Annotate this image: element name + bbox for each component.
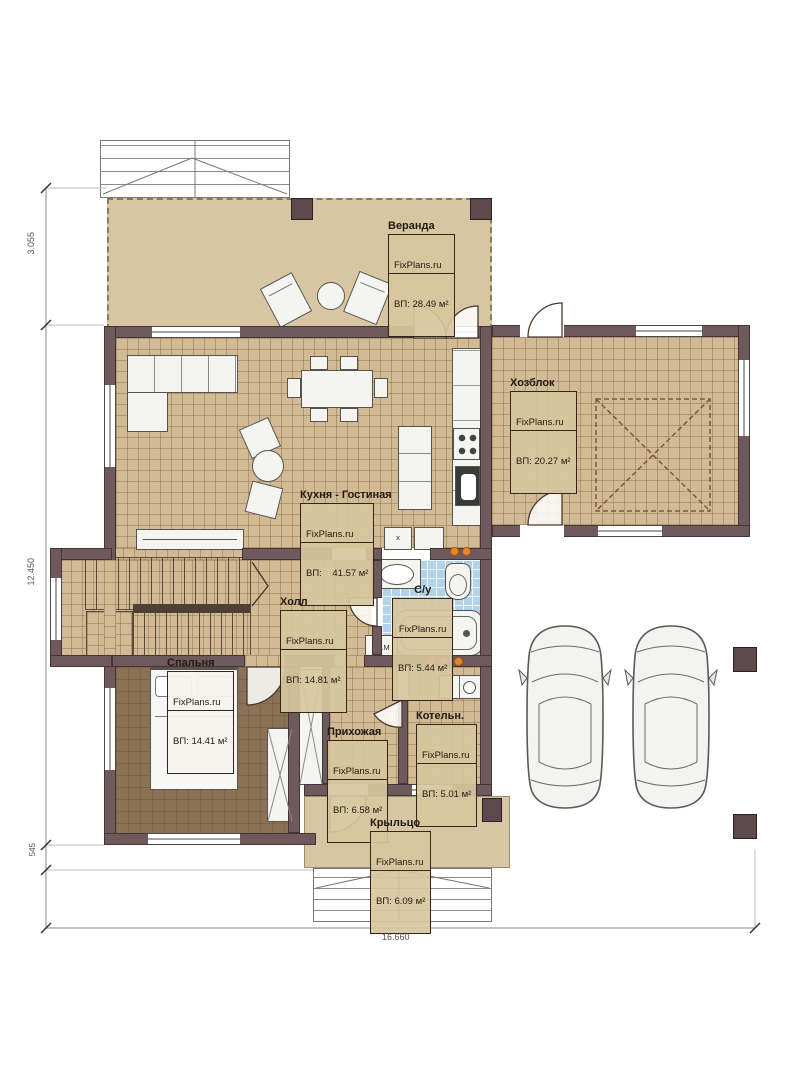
room-label-boiler: Котельн. FixPlans.ru ВП: 5.01 м² [416, 710, 477, 827]
wall-segment [50, 655, 112, 667]
floor-plan: x Ст.М [0, 0, 792, 1080]
brand-watermark: FixPlans.ru [511, 416, 576, 431]
room-name: Прихожая [327, 726, 388, 738]
room-area: ВП: 5.01 м² [417, 788, 476, 802]
room-name: Кухня - Гостиная [300, 489, 392, 501]
bathtub-drain [463, 630, 470, 637]
porch-post [482, 798, 502, 822]
room-area: ВП: 6.09 м² [371, 895, 430, 909]
hozblok-door-opening [520, 325, 564, 337]
brand-watermark: FixPlans.ru [328, 765, 387, 780]
window [50, 578, 62, 640]
car [519, 626, 611, 808]
room-info-box: FixPlans.ru ВП: 14.81 м² [280, 610, 347, 713]
window [104, 385, 116, 467]
stairs-rail [133, 604, 251, 613]
room-label-kitchen-living: Кухня - Гостиная FixPlans.ru ВП: 41.57 м… [300, 489, 392, 606]
room-area: ВП: 6.58 м² [328, 804, 387, 818]
tv-stand [136, 529, 244, 550]
window [598, 525, 662, 537]
brand-watermark: FixPlans.ru [417, 749, 476, 764]
chair [340, 356, 358, 370]
lounge-chair-line [360, 282, 384, 293]
room-info-box: FixPlans.ru ВП: 20.27 м² [510, 391, 577, 494]
wall-segment [430, 548, 492, 560]
veranda-table [317, 282, 345, 310]
veranda-post [470, 198, 492, 220]
wall-segment [372, 626, 382, 655]
dimension-left-bottom: 545 [28, 843, 37, 856]
room-info-box: FixPlans.ru ВП: 28.49 м² [388, 234, 455, 337]
room-label-hall: Холл FixPlans.ru ВП: 14.81 м² [280, 596, 347, 713]
light-marker [462, 547, 471, 556]
boiler-dial [463, 681, 476, 694]
room-name: Веранда [388, 220, 455, 232]
chair [374, 378, 388, 398]
wall-segment [480, 326, 492, 796]
dimension-bottom: 16.660 [382, 932, 410, 942]
light-marker [450, 547, 459, 556]
car [625, 626, 717, 808]
room-info-box: FixPlans.ru ВП: 41.57 м² [300, 503, 374, 606]
room-name: Котельн. [416, 710, 477, 722]
top-exterior-steps [100, 140, 290, 198]
window [104, 688, 116, 770]
lounge-chair-line [269, 283, 292, 296]
site-column [733, 814, 757, 839]
chair [310, 356, 328, 370]
room-area: ВП: 14.81 м² [281, 674, 346, 688]
room-name: Холл [280, 596, 347, 608]
room-info-box: FixPlans.ru ВП: 5.01 м² [416, 724, 477, 827]
room-area: ВП: 5.44 м² [393, 662, 452, 676]
wall-segment [398, 700, 408, 784]
sink-basin [461, 474, 476, 500]
window [636, 325, 702, 337]
brand-watermark: FixPlans.ru [389, 259, 454, 274]
room-area: ВП: 28.49 м² [389, 298, 454, 312]
tv-stand-line [143, 539, 237, 540]
dimension-left-middle: 12.450 [26, 558, 36, 586]
dimension-left-top: 3.055 [26, 232, 36, 255]
room-info-box: FixPlans.ru ВП: 14.41 м² [167, 671, 234, 774]
room-area: ВП: 41.57 м² [301, 567, 373, 581]
brand-watermark: FixPlans.ru [393, 623, 452, 638]
room-name: Крыльцо [370, 817, 431, 829]
window [148, 833, 240, 845]
window [152, 326, 240, 338]
room-label-bathroom: С/у FixPlans.ru ВП: 5.44 м² [392, 584, 453, 701]
room-label-hozblok: Хозблок FixPlans.ru ВП: 20.27 м² [510, 377, 577, 494]
brand-watermark: FixPlans.ru [301, 528, 373, 543]
stove [453, 428, 480, 460]
cabinet [414, 527, 444, 550]
bedroom-door-gap [245, 655, 285, 667]
sofa [127, 355, 238, 393]
coffee-table [252, 450, 284, 482]
boiler-divider [459, 676, 460, 698]
room-info-box: FixPlans.ru ВП: 6.09 м² [370, 831, 431, 934]
room-label-bedroom: Спальня FixPlans.ru ВП: 14.41 м² [167, 657, 234, 774]
window [738, 360, 750, 436]
room-info-box: FixPlans.ru ВП: 5.44 м² [392, 598, 453, 701]
room-area: ВП: 20.27 м² [511, 455, 576, 469]
chair [340, 408, 358, 422]
room-name: С/у [392, 584, 453, 596]
dining-table [301, 370, 373, 408]
hozblok-door-opening [520, 525, 564, 537]
kitchen-sink [455, 466, 480, 506]
room-name: Спальня [167, 657, 234, 669]
brand-watermark: FixPlans.ru [168, 696, 233, 711]
brand-watermark: FixPlans.ru [371, 856, 430, 871]
chair [310, 408, 328, 422]
light-marker [454, 657, 463, 666]
brand-watermark: FixPlans.ru [281, 635, 346, 650]
chair [287, 378, 301, 398]
room-area: ВП: 14.41 м² [168, 735, 233, 749]
kitchen-island [398, 426, 432, 510]
site-column [733, 647, 757, 672]
room-label-veranda: Веранда FixPlans.ru ВП: 28.49 м² [388, 220, 455, 337]
hall-bumpout-opening [104, 560, 116, 655]
room-label-porch: Крыльцо FixPlans.ru ВП: 6.09 м² [370, 817, 431, 934]
veranda-post [291, 198, 313, 220]
room-name: Хозблок [510, 377, 577, 389]
